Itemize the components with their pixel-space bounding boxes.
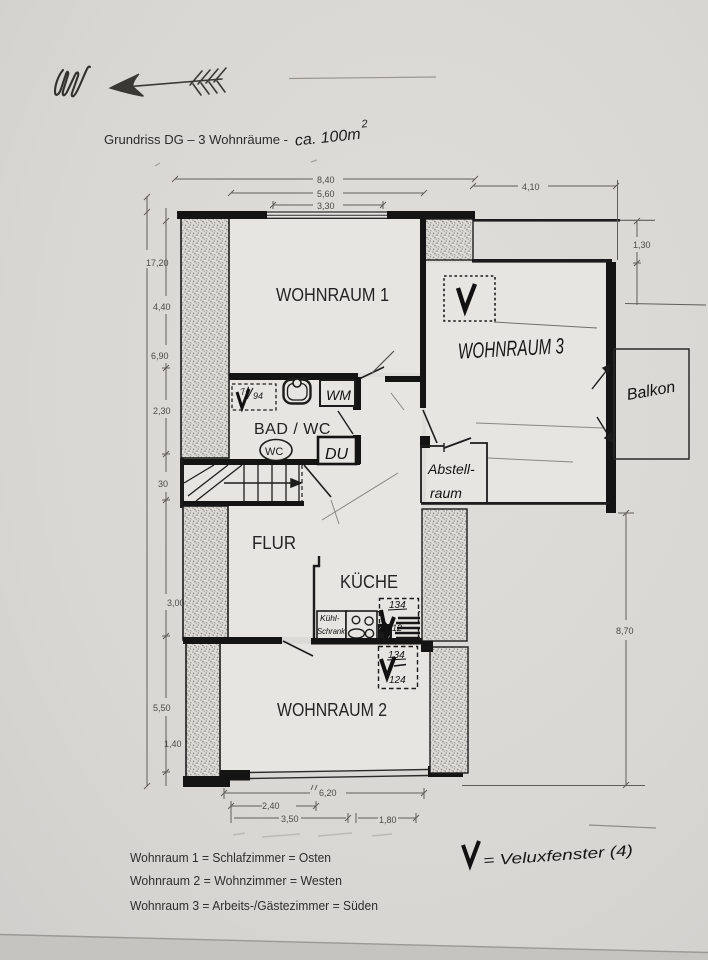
svg-text:WOHNRAUM 2: WOHNRAUM 2 [277, 700, 387, 720]
svg-text:KÜCHE: KÜCHE [340, 572, 398, 592]
svg-text:17,20: 17,20 [146, 258, 169, 268]
svg-text:124: 124 [389, 675, 406, 686]
svg-text:6,90: 6,90 [151, 351, 169, 361]
svg-text:raum: raum [430, 485, 462, 501]
svg-text:4,40: 4,40 [153, 302, 171, 312]
svg-text:6,20: 6,20 [319, 788, 337, 798]
svg-text:8,70: 8,70 [616, 626, 634, 636]
svg-text:1,80: 1,80 [379, 815, 397, 825]
svg-text:2: 2 [360, 118, 368, 131]
svg-text:Wohnraum 1 = Schlafzimmer = Os: Wohnraum 1 = Schlafzimmer = Osten [130, 850, 331, 865]
svg-text:Wohnraum 3 = Arbeits-/Gästezim: Wohnraum 3 = Arbeits-/Gästezimmer = Süde… [130, 898, 378, 913]
svg-text:3,00: 3,00 [167, 598, 185, 608]
svg-text:1,30: 1,30 [633, 240, 651, 250]
svg-text:Abstell-: Abstell- [427, 461, 475, 477]
svg-text:DU: DU [325, 446, 349, 463]
svg-text:3,50: 3,50 [281, 814, 299, 824]
svg-text:WC: WC [265, 446, 283, 458]
svg-text:2,40: 2,40 [262, 801, 280, 811]
svg-text:30: 30 [158, 479, 168, 489]
svg-text:1,40: 1,40 [164, 739, 182, 749]
svg-text:FLUR: FLUR [252, 533, 296, 553]
svg-text:Grundriss DG – 3 Wohnräume -: Grundriss DG – 3 Wohnräume - [104, 132, 288, 147]
svg-text:Wohnraum 2 = Wohnzimmer = West: Wohnraum 2 = Wohnzimmer = Westen [130, 873, 342, 888]
svg-text:4,10: 4,10 [522, 182, 540, 192]
svg-text:BAD / WC: BAD / WC [254, 421, 331, 438]
svg-text:3,30: 3,30 [317, 201, 335, 211]
svg-text:WOHNRAUM 1: WOHNRAUM 1 [276, 285, 389, 305]
svg-text:5,50: 5,50 [153, 703, 171, 713]
svg-text:5,60: 5,60 [317, 189, 335, 199]
svg-text:Schrank: Schrank [317, 626, 346, 636]
svg-text:Kühl-: Kühl- [320, 613, 340, 623]
svg-text:8,40: 8,40 [317, 175, 335, 185]
svg-text:94: 94 [253, 391, 263, 401]
svg-text:WM: WM [326, 387, 351, 403]
svg-text:2,30: 2,30 [153, 406, 171, 416]
